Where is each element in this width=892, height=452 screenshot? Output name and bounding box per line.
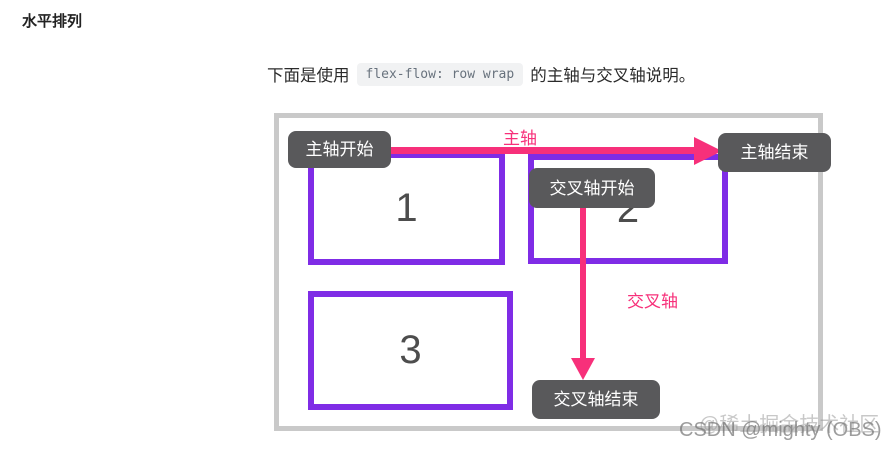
cross-axis-end-label: 交叉轴结束 <box>532 380 660 419</box>
intro-text-prefix: 下面是使用 <box>267 62 350 86</box>
flex-axes-diagram: 1 2 3 主轴 交叉轴 主轴开始 主轴结束 交叉轴开始 交叉轴结束 <box>274 113 823 431</box>
cross-axis-caption: 交叉轴 <box>627 287 678 312</box>
main-axis-end-label: 主轴结束 <box>718 133 831 172</box>
flex-item-3-number: 3 <box>399 328 421 373</box>
cross-axis-arrow-line <box>580 206 586 358</box>
cross-axis-start-label: 交叉轴开始 <box>529 168 655 208</box>
main-axis-caption: 主轴 <box>503 124 537 149</box>
main-axis-start-label: 主轴开始 <box>288 131 391 168</box>
inline-code-flex-flow: flex-flow: row wrap <box>357 63 524 86</box>
flex-item-3: 3 <box>308 291 513 410</box>
intro-text-suffix: 的主轴与交叉轴说明。 <box>530 62 695 86</box>
page-title: 水平排列 <box>22 10 82 31</box>
intro-paragraph: 下面是使用 flex-flow: row wrap 的主轴与交叉轴说明。 <box>267 62 695 86</box>
flex-item-1-number: 1 <box>395 186 417 231</box>
cross-axis-arrowhead-icon <box>571 358 595 380</box>
flex-item-1: 1 <box>308 152 505 265</box>
